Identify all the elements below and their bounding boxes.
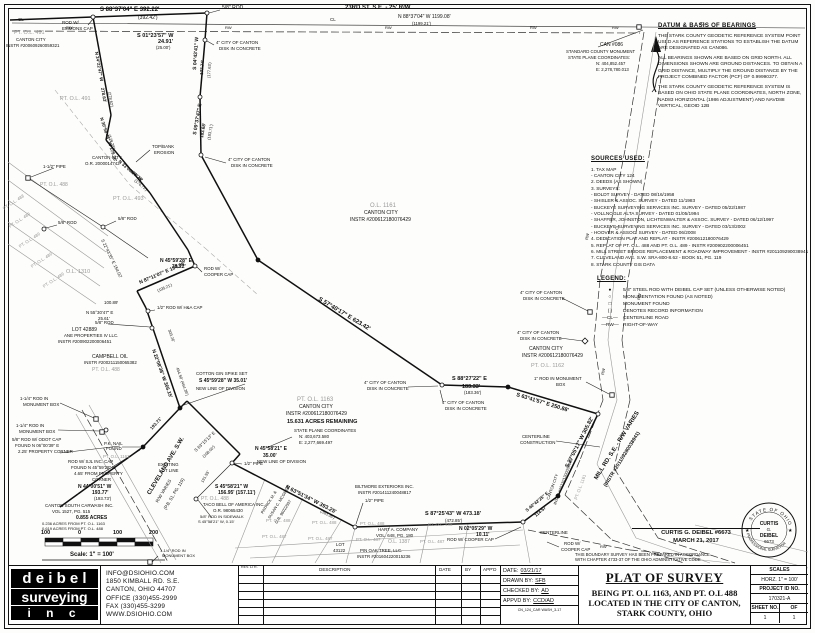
plat-label: N 55°30'47" E (86, 310, 113, 315)
plat-label: 43122 (333, 548, 346, 553)
monument-circle (230, 461, 234, 465)
scale-bar: 1000100200Scale: 1" = 100' (41, 530, 165, 560)
plat-label: 1-1/2" PIPE (43, 164, 66, 169)
plat-label: PT. O.L. 489 (18, 231, 42, 249)
scale-bar-cell (117, 538, 135, 542)
scale-bar-cell (63, 538, 81, 542)
monument-square (637, 25, 641, 29)
rev-col-appd: APP'D (483, 567, 496, 572)
plat-label: CONSTRUCTION (520, 440, 555, 445)
drawn-value: SFB (535, 578, 545, 584)
monument-circle (141, 445, 145, 449)
leader-line (547, 542, 559, 547)
plat-label: (195.21') (156, 282, 173, 293)
plat-label: DISK IN CONCRETE (445, 406, 487, 411)
plat-label: O.L. 1310 (66, 269, 90, 275)
plat-label: LOT (336, 542, 345, 547)
monument-circle (596, 412, 600, 416)
company-contact: INFO@DSIOHIO.COM 1850 KIMBALL RD. S.E. C… (101, 566, 239, 624)
plat-label: TACO BELL OF AMERICA INC. (203, 502, 265, 507)
plat-label: CENTERLINE (540, 530, 568, 535)
datum-paragraph: THE STARK COUNTY GEODETIC REFERENCE SYST… (658, 85, 804, 110)
monument-circle (203, 38, 207, 42)
monument-circle (353, 525, 357, 529)
plat-label: FOUND N 45°59'28" E (71, 465, 115, 470)
plat-label: INSTR #200609260059321 (6, 43, 60, 48)
plat-label: (472.85') (445, 518, 463, 523)
monument-circle (256, 258, 260, 262)
legend-title: LEGEND: (597, 276, 807, 284)
plat-page: 1000100200Scale: 1" = 100' S 88°37'04" E… (0, 0, 815, 633)
plat-label: S 88°37'04" E 392.22' (100, 7, 160, 13)
plat-label: RW (584, 233, 590, 241)
right-of-way-line (12, 31, 640, 33)
plat-title: PLAT OF SURVEY (579, 570, 750, 586)
plat-label: E: 2,277,669.497 (299, 440, 333, 445)
contact-address1: 1850 KIMBALL RD. S.E. (106, 578, 238, 586)
plat-label: EROSION (154, 150, 174, 155)
plat-label: INSTR #200612180076429 (286, 411, 347, 417)
legend-text: RIGHT-OF-WAY (623, 322, 658, 329)
drawing-title: PLAT OF SURVEY BEING PT. O.L 1163, AND P… (579, 566, 751, 624)
scale-bar-cell (99, 542, 117, 546)
monument-circle (150, 326, 154, 330)
logo-line-1: d e i b e l (11, 569, 98, 588)
plat-label: ROD W/ (204, 266, 221, 271)
monument-square (94, 417, 98, 421)
plat-label: CENTERLINE (522, 434, 550, 439)
contact-office: OFFICE (330)455-2999 (106, 595, 238, 603)
scales-header: SCALES (751, 566, 808, 575)
logo-line-3: i n c (11, 606, 98, 620)
date-value: 03/21/17 (520, 568, 541, 574)
plat-label: 5/8" ROD (118, 216, 137, 221)
monument-square (100, 430, 104, 434)
legend-text: MONUMENT FOUND (623, 301, 670, 308)
plat-label: STATE PLANE COORDINATES: (568, 55, 630, 60)
plat-label: CORNER (92, 477, 111, 482)
contact-web: WWW.DSIOHIO.COM (106, 611, 238, 619)
legend-item: ○MONUMENTATION FOUND (AS NOTED) (597, 294, 807, 301)
monument-circle (506, 385, 510, 389)
plat-label: (193.73') (94, 496, 112, 501)
plat-label: S 22°43'35" E 154.02' (100, 238, 123, 279)
parcel-line (315, 519, 342, 563)
scale-bar-cell (45, 538, 63, 542)
legend-symbol-icon: ● (597, 287, 623, 294)
old-lot-line (55, 90, 130, 185)
leader-line (12, 23, 639, 27)
leader-line (586, 382, 609, 394)
datum-panel: DATUM & BASIS OF BEARINGS THE STARK COUN… (658, 23, 804, 114)
scale-bar-label: 100 (113, 530, 122, 536)
plat-label: N 45°58'21" E (255, 446, 288, 452)
plat-label: INSTR #201604220015236 (357, 554, 411, 559)
legend-symbol-icon: —CL— (597, 315, 623, 322)
right-of-way-line (622, 340, 630, 400)
plat-label: CANTON CITY (16, 37, 46, 42)
leader-line (46, 225, 57, 228)
monument-circle (521, 520, 525, 524)
plat-label: COTTON GIN SPIKE SET (196, 371, 248, 376)
plat-label: (392.42') (138, 15, 158, 21)
sources-panel: SOURCES USED: 1. TAX MAP - CANTON CITY 1… (591, 156, 806, 268)
plat-label: PT. O.L. 488 (266, 518, 291, 523)
scale-bar-cell (117, 542, 135, 546)
leader-line (136, 150, 150, 162)
plat-label: BOX (556, 382, 565, 387)
plat-label: (177.63') (206, 61, 212, 78)
plat-label: PT. O.L. 491 (14, 30, 45, 36)
legend-item: □MONUMENT FOUND (597, 301, 807, 308)
scale-caption: Scale: 1" = 100' (70, 552, 114, 558)
plat-label: PT. O.L. 488 (92, 367, 120, 373)
legend-text: DENOTES RECORD INFORMATION (623, 308, 703, 315)
plat-label: 2.25' PROPERTY CORNER (18, 449, 73, 454)
datum-paragraph: ALL BEARINGS SHOWN ARE BASED ON GRID NOR… (658, 56, 804, 81)
certification-statement: THIS BOUNDARY SURVEY HAS BEEN PREPARED I… (575, 552, 753, 563)
plat-label: PT. O.L. 489 (8, 211, 32, 229)
plat-label: INSTR #201411240048817 (358, 490, 412, 495)
leader-line (560, 338, 583, 341)
boundary-line (258, 260, 442, 385)
legend-symbol-icon: ( ) (597, 308, 623, 315)
plat-label: 303.26' (167, 329, 176, 343)
boundary-line (205, 13, 207, 40)
plat-label: (1199.21') (412, 21, 431, 26)
plat-label: 1-1/4" ROD IN (20, 396, 48, 401)
leader-line (197, 267, 202, 272)
revision-table: REV. LTR. DESCRIPTION DATE BY APP'D (239, 566, 501, 624)
plat-label: O.L. 1161 (370, 203, 397, 209)
plat-label: STATE PLANE COORDINATES (294, 428, 356, 433)
monument-circle (193, 264, 197, 268)
plat-label: PT. O.L. 488 (360, 521, 385, 526)
rev-col-ltr: REV. LTR. (241, 566, 258, 570)
seal-number: 6673 (764, 539, 774, 544)
plat-label: PT. O.L. 488 (2, 193, 26, 211)
plat-label: DISK IN CONCRETE (367, 386, 409, 391)
plat-label: PT. O.L. 491 (60, 96, 91, 102)
plat-label: PT. O.L. 488 (312, 520, 337, 525)
checked-value: AD (541, 588, 549, 594)
legend-item: ●5/8" STEEL ROD WITH DEIBEL CAP SET (UNL… (597, 287, 807, 294)
parcel-line (89, 405, 176, 560)
of-value: 1 (780, 613, 808, 623)
leader-line (152, 556, 158, 562)
plat-label: ROD W/ COOPER CAP (447, 537, 494, 542)
plat-label: INSTR #200902200006451 (58, 339, 112, 344)
plat-label: S 45°58'21" W, 0.15' (198, 519, 235, 524)
plat-label: O.R. 98065430 (213, 508, 243, 513)
boundary-line (508, 387, 598, 414)
leader-line (562, 298, 588, 311)
plat-label: 4" CITY OF CANTON (364, 380, 406, 385)
appvd-label: APPVD BY: (503, 598, 531, 604)
plat-label: CL (18, 17, 24, 22)
plat-label: 5/8" ROD (222, 5, 244, 11)
plat-label: N 88°37'04" W 1199.08' (398, 14, 451, 20)
leader-line (408, 386, 438, 387)
monument-square (588, 310, 592, 314)
plat-subtitle-2: LOCATED IN THE CITY OF CANTON, (579, 598, 750, 608)
appvd-value: CCD/AD (533, 598, 554, 604)
plat-label: ROD W/ (564, 541, 581, 546)
contact-address2: CANTON, OHIO 44707 (106, 586, 238, 594)
plat-label: FOUND N 06°00'39" E (15, 443, 59, 448)
plat-label: 1-1/4" ROD IN (16, 423, 44, 428)
plat-label: INSTR #200612180076429 (350, 217, 411, 223)
plat-label: 4" CITY OF CANTON (228, 157, 270, 162)
project-id-header: PROJECT ID NO. (751, 585, 808, 594)
plat-label: N: 403,673.580 (299, 434, 330, 439)
approvals-block: DATE:03/21/17 DRAWN BY:SFB CHECKED BY:AD… (501, 566, 579, 624)
plat-label: PT. O.L. 487 (308, 536, 333, 541)
source-line: - SHAFFER, JOHNSTON, LICHTENWALTER & ASS… (591, 217, 806, 223)
monument-square (610, 393, 614, 397)
plat-label: 5/8" ROD (58, 220, 77, 225)
boundary-line (150, 193, 188, 250)
plat-label: PT. O.L. 1163 (297, 397, 334, 403)
seal-star-right: ★ (788, 528, 793, 534)
plat-label: 4.65' FROM PROPERTY (74, 471, 123, 476)
plat-label: MONUMENT BOX (19, 429, 55, 434)
scale-bar-cell (135, 538, 153, 542)
project-id-value: 170321-A (751, 594, 808, 604)
plat-label: O.L. 1387 (388, 539, 410, 545)
source-line: 8. STARK COUNTY GIS DATA (591, 262, 806, 268)
scales-block: SCALES HORZ. 1" = 100' PROJECT ID NO. 17… (751, 566, 808, 624)
monument-circle (101, 225, 105, 229)
plat-label: DISK IN CONCRETE (520, 336, 562, 341)
right-of-way-line (565, 495, 612, 540)
leader-line (205, 157, 226, 163)
monument-circle (178, 406, 182, 410)
monument-square (26, 176, 30, 180)
plat-label: PT. O.L. 1161 (573, 473, 587, 500)
sheet-no-header: SHEET NO. (751, 604, 780, 612)
sources-list: 1. TAX MAP - CANTON CITY 1242. DEEDS (AS… (591, 167, 806, 269)
legend-item: —RW—RIGHT-OF-WAY (597, 322, 807, 329)
plat-label: N: 404,852.457 (596, 61, 626, 66)
plat-subtitle-3: STARK COUNTY, OHIO (579, 608, 750, 618)
legend-list: ●5/8" STEEL ROD WITH DEIBEL CAP SET (UNL… (597, 287, 807, 330)
monument-circle (194, 497, 198, 501)
plat-label: PT. O.L. 489 (30, 251, 54, 269)
plat-label: RW (600, 368, 606, 376)
plat-label: ANE PROPERTIES IV LLC. (64, 333, 118, 338)
scale-bar-cell (63, 542, 81, 546)
plat-label: CL (330, 17, 336, 22)
plat-label: RW (385, 25, 392, 30)
scale-bar-cell (81, 538, 99, 542)
plat-label: DISK IN CONCRETE (219, 46, 261, 51)
plat-label: S 87°25'43" W 473.18' (425, 511, 482, 517)
legend-text: MONUMENTATION FOUND (AS NOTED) (623, 294, 713, 301)
plat-label: 5/8" ROD W/ ODOT CAP (12, 437, 61, 442)
plat-label: 191.55' (200, 470, 211, 484)
plat-label: INSTR #200211150065382 (84, 360, 137, 365)
plat-label: RW (225, 25, 232, 30)
plat-label: PT. O.L. 487 (262, 534, 287, 539)
boundary-line (146, 308, 180, 408)
plat-label: S 57°40'17" E 623.42' (317, 297, 372, 333)
plat-label: (183.71') (206, 123, 214, 140)
contact-email: INFO@DSIOHIO.COM (106, 570, 238, 578)
plat-label: STANDARD COUNTY MONUMENT (566, 49, 635, 54)
plat-label: RW (612, 25, 619, 30)
scale-bar-cell (99, 538, 117, 542)
plat-label: BILTMORE EXTERIORS INC. (355, 484, 414, 489)
rev-col-date: DATE (439, 567, 451, 572)
plat-label: DISK IN CONCRETE (231, 163, 273, 168)
leader-line (495, 527, 521, 539)
plat-label: 5/8" ROD (95, 320, 114, 325)
plat-label: 454.50' (464.39') (175, 367, 190, 397)
plat-label: N 63°51'34" W 393.25' (284, 484, 338, 515)
plat-label: COOPER CAP (204, 272, 233, 277)
plat-label: CANTON CITY (299, 404, 333, 410)
plat-label: FOUND (106, 446, 122, 451)
legend-text: 5/8" STEEL ROD WITH DEIBEL CAP SET (UNLE… (623, 287, 785, 294)
plat-label: MONUMENT BOX (162, 553, 195, 558)
plat-label: RW (530, 25, 537, 30)
parcel-line (346, 528, 355, 563)
plat-label: CANTON CITY (364, 210, 398, 216)
parcel-line (8, 200, 104, 268)
checked-label: CHECKED BY: (503, 588, 539, 594)
file-name: CN_124_CAR WASH_3-17 (501, 606, 578, 613)
drawn-label: DRAWN BY: (503, 578, 533, 584)
plat-subtitle-1: BEING PT. O.L 1163, AND PT. O.L 488 (579, 588, 750, 598)
plat-label: (183.36') (464, 390, 482, 395)
leader-line (88, 19, 93, 25)
monument-circle (42, 227, 46, 231)
plat-label: HART A. COMPANY (378, 527, 418, 532)
monument-circle (440, 383, 444, 387)
plat-label: MONUMENT BOX (23, 402, 59, 407)
leader-line (207, 41, 214, 45)
plat-label: 1/2" ROD W/ H&A CAP (157, 305, 203, 310)
datum-paragraph: THE STARK COUNTY GEODETIC REFERENCE SYST… (658, 34, 804, 53)
logo-line-2: surveying (11, 589, 98, 605)
certification-line: WITH CHAPTER 4733-37 OF THE OHIO ADMINIS… (575, 557, 753, 562)
plat-label: CANTON SOUTH CARWASH INC. (45, 503, 113, 508)
leader-line (209, 10, 220, 13)
scale-bar-cell (81, 542, 99, 546)
plat-label: VOL 1527, PG. 515 (52, 509, 91, 514)
plat-label: (25.00') (156, 45, 171, 50)
date-label: DATE: (503, 568, 518, 574)
sheet-no-value: 1 (751, 613, 780, 623)
monument-circle (205, 11, 209, 15)
legend-symbol-icon: □ (597, 301, 623, 308)
plat-label: RW (66, 25, 73, 30)
plat-label: PT. O.L. 1162 (531, 363, 564, 369)
old-lot-line (130, 185, 205, 248)
legend-symbol-icon: ○ (597, 294, 623, 301)
legend-text: CENTERLINE ROAD (623, 315, 669, 322)
plat-label: PT. O.L. 489 (42, 271, 66, 289)
plat-label: PT. O.L. 488 (40, 182, 68, 188)
monument-circle (91, 15, 95, 19)
scale-horz: HORZ. 1" = 100' (751, 575, 808, 585)
of-header: OF (780, 604, 808, 612)
leader-line (105, 221, 116, 226)
monument-circle (146, 309, 150, 313)
plat-label: E: 2,278,780.013 (596, 67, 629, 72)
seal-name2: G. (767, 527, 772, 532)
scale-bar-cell (45, 542, 63, 546)
plat-label: PT. O.L. 1163 (103, 454, 130, 459)
monument-circle (556, 494, 560, 498)
leader-line (31, 168, 54, 177)
plat-label: 100.89' (104, 300, 118, 305)
plat-label: 1" ROD IN MONUMENT (534, 376, 582, 381)
parcel-line (420, 526, 428, 563)
parcel-line (597, 464, 636, 538)
plat-label: O.R. 2000014742 (85, 161, 120, 166)
plat-label: VOL. 648, PG. 180 (376, 533, 414, 538)
plat-label: 4" CITY OF CANTON (520, 290, 562, 295)
monument-circle (198, 95, 202, 99)
surveyor-name: CURTIS G. DEIBEL #6673 (632, 530, 760, 538)
plat-label: 177.74' (199, 60, 205, 75)
plat-label: PT. O.L. 487 (420, 539, 445, 544)
plat-label: CANTON CITY (529, 346, 563, 352)
plat-label: DISK IN CONCRETE (523, 296, 565, 301)
plat-label: 114.57' (533, 505, 547, 518)
plat-label: 0.619 ACRES FROM PT. O.L. 488 (42, 526, 104, 531)
plat-label: TOP/BANK (152, 144, 174, 149)
datum-title: DATUM & BASIS OF BEARINGS (658, 23, 804, 31)
boundary-line (201, 155, 258, 260)
plat-label: ROD W/ SJL INC. CAP (68, 459, 113, 464)
signature-block: CURTIS G. DEIBEL #6673 MARCH 21, 2017 (632, 528, 760, 546)
plat-label: 4" CITY OF CANTON (517, 330, 559, 335)
legend-symbol-icon: —RW— (597, 322, 623, 329)
legend-item: —CL—CENTERLINE ROAD (597, 315, 807, 322)
boundary-line (137, 291, 146, 308)
plat-label: CANTON CITY (92, 155, 122, 160)
contact-fax: FAX (330)455-3299 (106, 603, 238, 611)
plat-label: PIN OAK TREE, LLC. (360, 548, 402, 553)
company-logo: d e i b e l surveying i n c (9, 566, 101, 624)
plat-label: 4" CITY OF CANTON (216, 40, 258, 45)
plat-label: 23RD ST. S.E. - 25' R/W (345, 5, 411, 11)
legend-panel: LEGEND: ●5/8" STEEL ROD WITH DEIBEL CAP … (597, 276, 807, 330)
plat-label: 1/2" PIPE (365, 498, 384, 503)
survey-date: MARCH 21, 2017 (632, 538, 760, 546)
title-block: d e i b e l surveying i n c INFO@DSIOHIO… (8, 565, 807, 625)
rev-col-by: BY (465, 567, 471, 572)
plat-label: INSTR #200612180076429 (522, 353, 583, 359)
plat-label: NEW LINE OF DIVISION (257, 459, 306, 464)
plat-label: NEW LINE OF DIVISION (196, 386, 245, 391)
rev-col-description: DESCRIPTION (319, 567, 350, 572)
plat-label: RW (600, 544, 607, 549)
parcel-line (608, 340, 617, 400)
sources-title: SOURCES USED: (591, 156, 806, 164)
plat-label: S 88°27'22" E (452, 376, 487, 382)
leader-line (108, 324, 150, 327)
monument-diamond (582, 338, 588, 344)
plat-label: 15.631 ACRES REMAINING (287, 419, 357, 425)
plat-label: PT. O.L. 493 (113, 196, 144, 202)
monument-circle (199, 153, 203, 157)
plat-label: 4" CITY OF CANTON (442, 400, 484, 405)
legend-item: ( )DENOTES RECORD INFORMATION (597, 308, 807, 315)
